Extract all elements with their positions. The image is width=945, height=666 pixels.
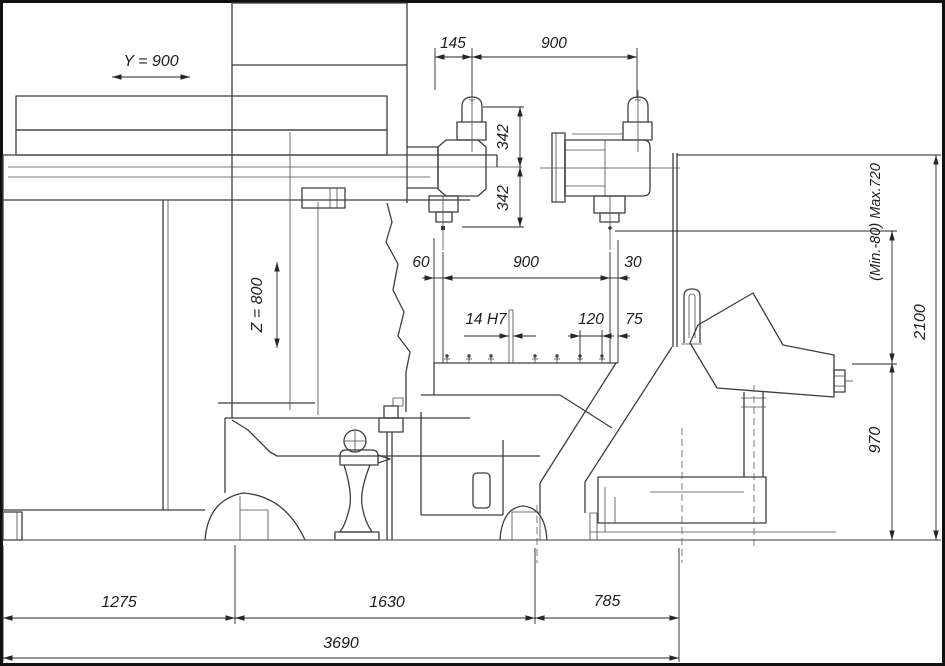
- drawing-sheet: Y = 900 Z = 800 145 900 342 342 60 90: [0, 0, 945, 666]
- machine-elevation-drawing: Y = 900 Z = 800 145 900 342 342 60 90: [0, 0, 945, 666]
- dim-label-75: 75: [625, 311, 643, 328]
- dim-label-mid-900: 900: [513, 254, 539, 271]
- dim-label-z-travel: Z = 800: [249, 278, 266, 334]
- dim-label-2100: 2100: [912, 304, 929, 341]
- dim-label-785: 785: [594, 593, 621, 610]
- dim-label-3690: 3690: [323, 635, 359, 652]
- dim-label-145: 145: [440, 35, 466, 52]
- sheet-frame: [2, 2, 944, 665]
- dim-label-y-travel: Y = 900: [123, 53, 178, 70]
- dim-label-342-lower: 342: [495, 185, 512, 211]
- dim-label-1630: 1630: [369, 594, 405, 611]
- dim-label-30: 30: [624, 254, 642, 271]
- dim-label-1275: 1275: [101, 594, 137, 611]
- dim-label-14h7: 14 H7: [465, 311, 508, 328]
- dim-label-970: 970: [867, 427, 884, 454]
- dim-label-120: 120: [578, 311, 604, 328]
- dim-label-top-900: 900: [541, 35, 567, 52]
- dim-label-max720: (Min.-80) Max.720: [868, 163, 884, 281]
- dim-label-60: 60: [412, 254, 430, 271]
- dim-label-342-upper: 342: [495, 124, 512, 150]
